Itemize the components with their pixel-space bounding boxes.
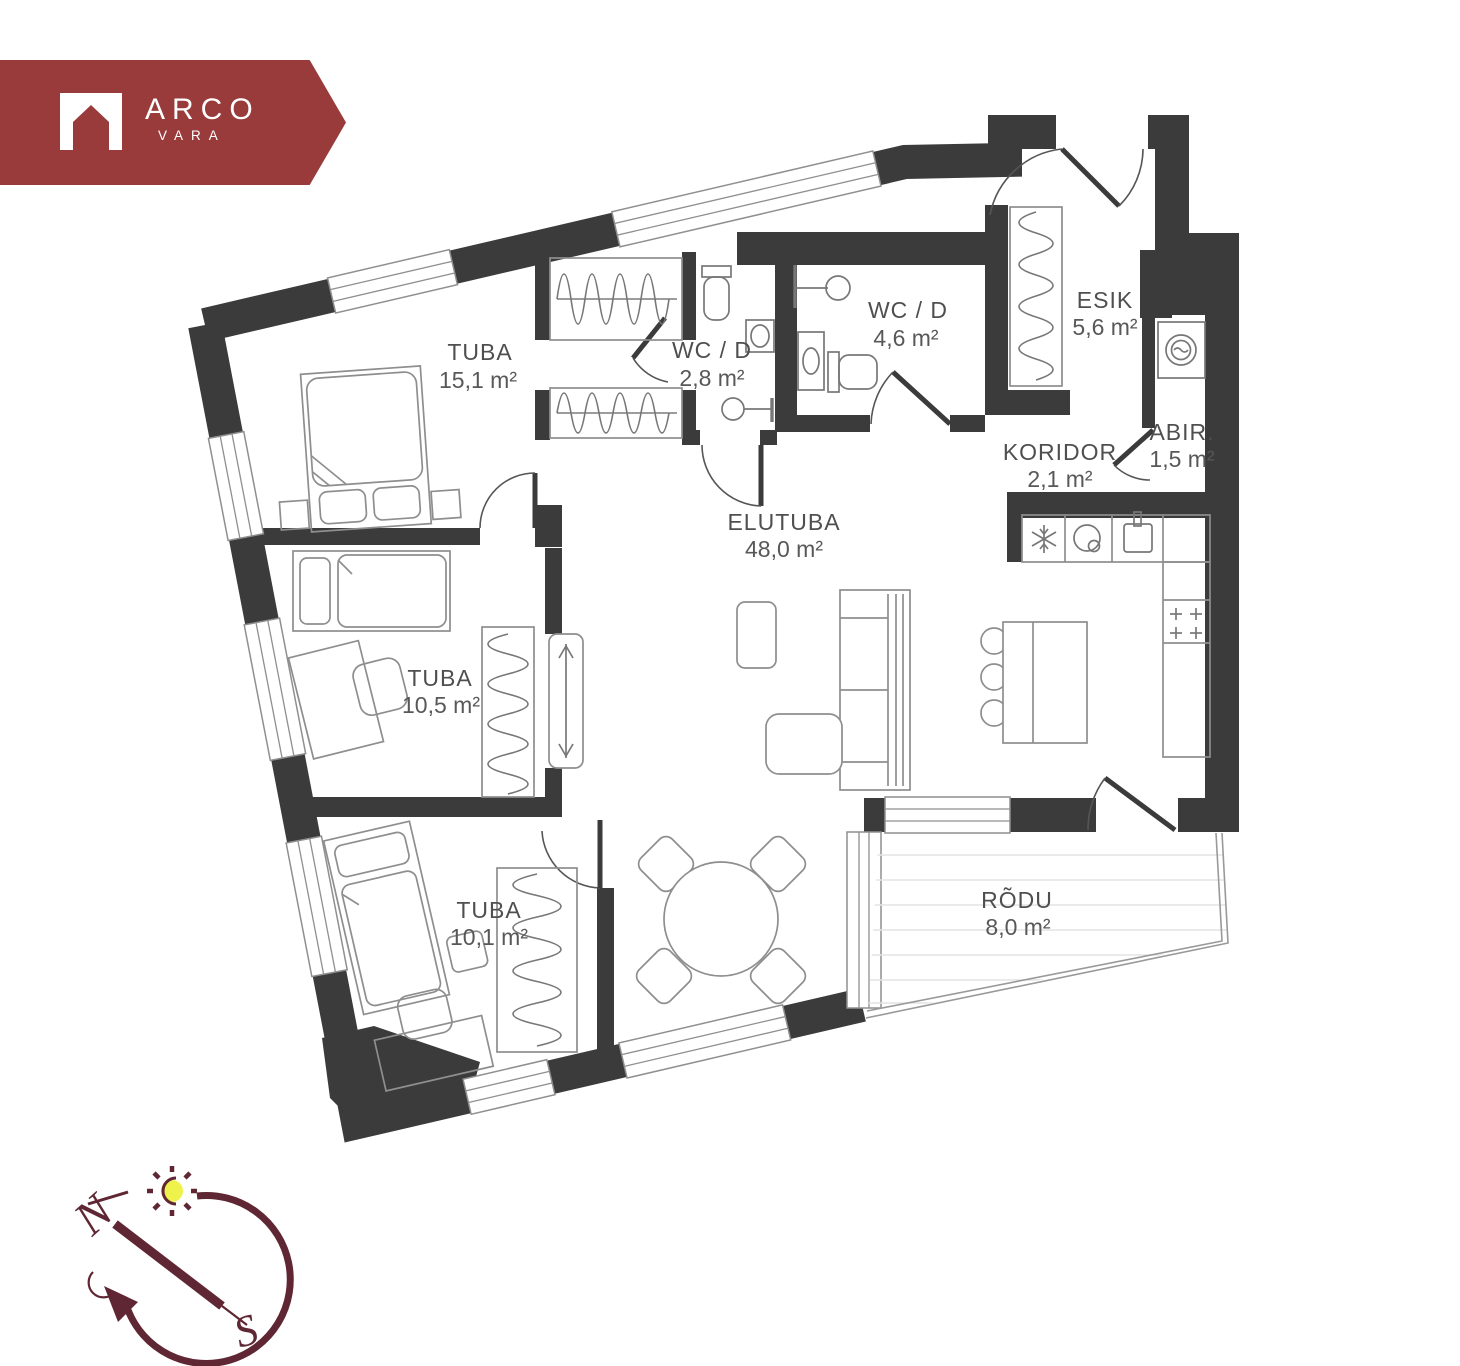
room-label-abir: ABIR. 1,5 m²	[1149, 419, 1215, 472]
compass-needle	[115, 1224, 222, 1306]
entry-door-opening	[1056, 113, 1148, 151]
toilet-icon	[828, 352, 877, 392]
shower-icon	[722, 398, 772, 422]
dishwasher-icon	[1074, 525, 1100, 552]
north-label: N	[63, 1183, 125, 1246]
svg-text:15,1 m²: 15,1 m²	[439, 367, 517, 393]
room-label-tuba-151: TUBA 15,1 m²	[439, 339, 517, 393]
room-label-elutuba: ELUTUBA 48,0 m²	[727, 509, 840, 562]
svg-text:KORIDOR: KORIDOR	[1003, 439, 1117, 465]
svg-text:ELUTUBA: ELUTUBA	[727, 509, 840, 535]
room-label-koridor: KORIDOR 2,1 m²	[1003, 439, 1117, 492]
bedroom-151-furniture	[271, 364, 462, 534]
svg-text:TUBA: TUBA	[456, 897, 521, 923]
sofa-icon	[766, 590, 910, 790]
svg-text:10,1 m²: 10,1 m²	[450, 924, 528, 950]
dining-table-icon	[633, 833, 809, 1007]
kitchen-island-icon	[981, 622, 1087, 743]
shower-icon	[795, 265, 850, 308]
svg-text:1,5 m²: 1,5 m²	[1149, 446, 1215, 472]
sliding-door-icon	[549, 634, 583, 768]
svg-text:RÕDU: RÕDU	[981, 886, 1053, 913]
svg-text:WC / D: WC / D	[868, 297, 948, 323]
double-bed-icon	[301, 366, 432, 532]
nightstand-icon	[431, 490, 461, 520]
floor-plan-page: ARCO VARA	[0, 0, 1460, 1366]
door-arc	[871, 372, 950, 424]
chair-icon	[351, 656, 410, 718]
window	[885, 797, 1010, 833]
room-label-tuba-105: TUBA 10,5 m²	[402, 665, 480, 718]
washing-machine-icon	[1158, 322, 1205, 378]
room-label-wc-28: WC / D 2,8 m²	[672, 337, 752, 391]
stove-icon	[1170, 608, 1202, 639]
door-arc	[702, 445, 761, 506]
svg-text:TUBA: TUBA	[447, 339, 512, 365]
svg-text:8,0 m²: 8,0 m²	[985, 914, 1051, 940]
room-label-tuba-101: TUBA 10,1 m²	[450, 897, 528, 950]
door-arc	[480, 473, 535, 528]
window	[847, 832, 881, 1008]
single-bed-icon	[293, 551, 450, 631]
window	[208, 432, 263, 541]
svg-text:2,8 m²: 2,8 m²	[679, 365, 745, 391]
toilet-icon	[702, 266, 731, 320]
chair-icon	[396, 987, 455, 1041]
kitchen-counter	[1163, 562, 1210, 757]
wardrobe-icon	[497, 868, 577, 1052]
door-arc	[1114, 430, 1153, 480]
bedroom-105-furniture	[288, 551, 450, 759]
wardrobe-icon	[482, 627, 534, 797]
room-label-wc-46: WC / D 4,6 m²	[868, 297, 948, 351]
room-label-rodu: RÕDU 8,0 m²	[981, 886, 1053, 940]
svg-text:2,1 m²: 2,1 m²	[1027, 466, 1093, 492]
nightstand-icon	[279, 500, 309, 530]
window	[328, 250, 458, 313]
svg-text:ABIR.: ABIR.	[1149, 419, 1214, 445]
window	[619, 1005, 791, 1078]
door-arc	[633, 318, 668, 382]
wardrobe-icon	[550, 258, 682, 340]
sun-path-arc	[128, 1195, 290, 1363]
svg-text:5,6 m²: 5,6 m²	[1072, 314, 1138, 340]
svg-text:WC / D: WC / D	[672, 337, 752, 363]
svg-text:10,5 m²: 10,5 m²	[402, 692, 480, 718]
snowflake-icon	[1032, 525, 1056, 553]
svg-text:ESIK: ESIK	[1077, 287, 1133, 313]
svg-text:4,6 m²: 4,6 m²	[873, 325, 939, 351]
washbasin-icon	[798, 332, 824, 390]
compass-rose: N S	[63, 1166, 290, 1363]
door-arc	[542, 820, 600, 888]
wardrobe-icon	[1010, 207, 1062, 386]
kitchen-counter	[1022, 515, 1210, 562]
wardrobe-icon	[550, 388, 682, 438]
room-labels: TUBA 15,1 m² WC / D 2,8 m² WC / D 4,6 m²…	[402, 287, 1215, 950]
floor-plan: TUBA 15,1 m² WC / D 2,8 m² WC / D 4,6 m²…	[0, 0, 1460, 1366]
room-label-esik: ESIK 5,6 m²	[1072, 287, 1138, 340]
sun-icon	[147, 1166, 197, 1216]
svg-text:TUBA: TUBA	[407, 665, 472, 691]
coffee-table-icon	[737, 602, 776, 668]
svg-text:48,0 m²: 48,0 m²	[745, 536, 823, 562]
